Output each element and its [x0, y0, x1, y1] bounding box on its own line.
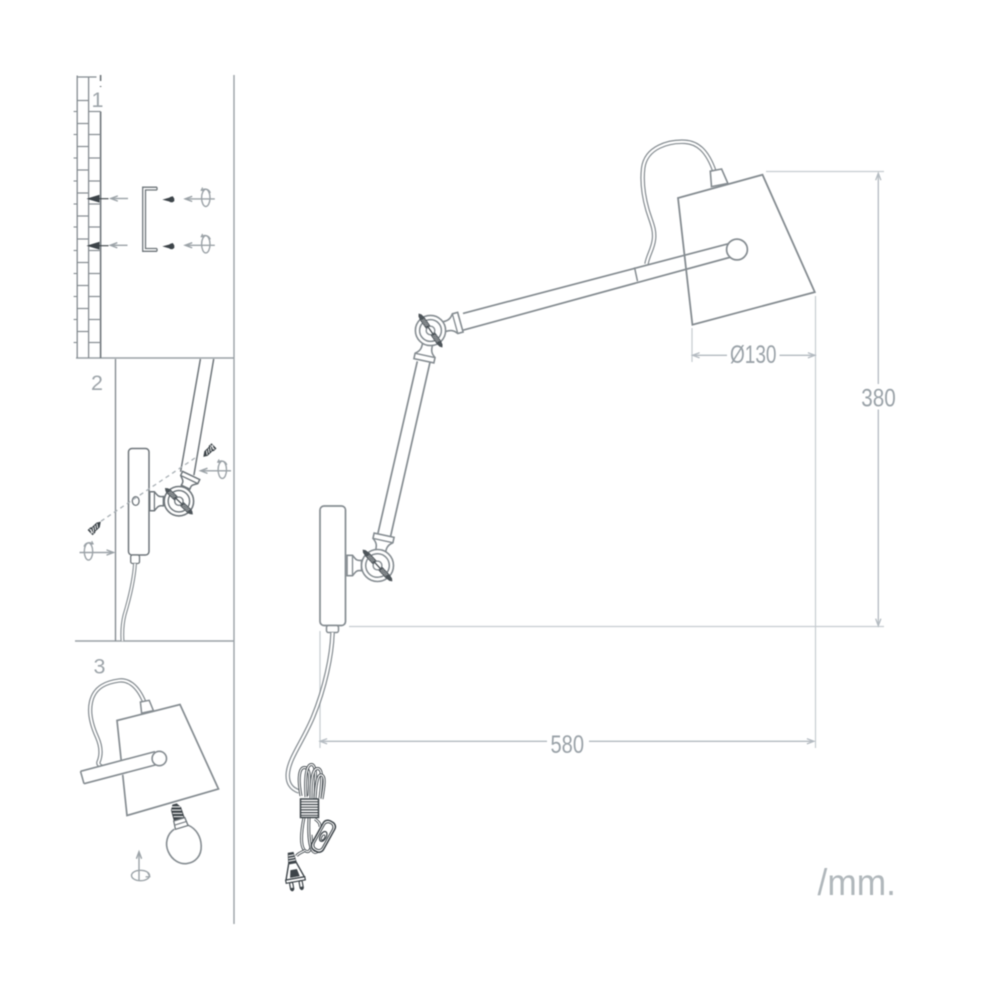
svg-text:580: 580: [551, 731, 585, 759]
svg-text:Ø130: Ø130: [730, 341, 777, 369]
svg-text:2: 2: [91, 371, 103, 395]
svg-text:1: 1: [92, 88, 104, 112]
svg-text:/mm.: /mm.: [818, 861, 897, 903]
svg-text:3: 3: [94, 655, 106, 679]
svg-text:380: 380: [861, 385, 896, 413]
